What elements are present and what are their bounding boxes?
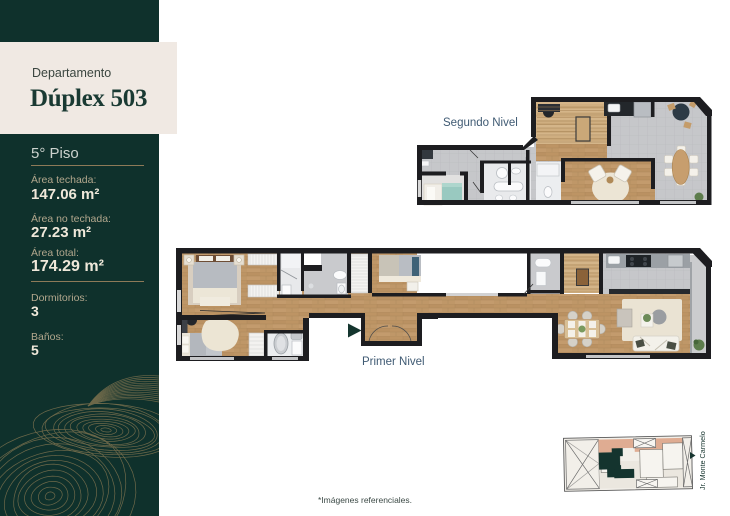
svg-text:Jr. Monte Carmelo: Jr. Monte Carmelo	[698, 431, 707, 490]
